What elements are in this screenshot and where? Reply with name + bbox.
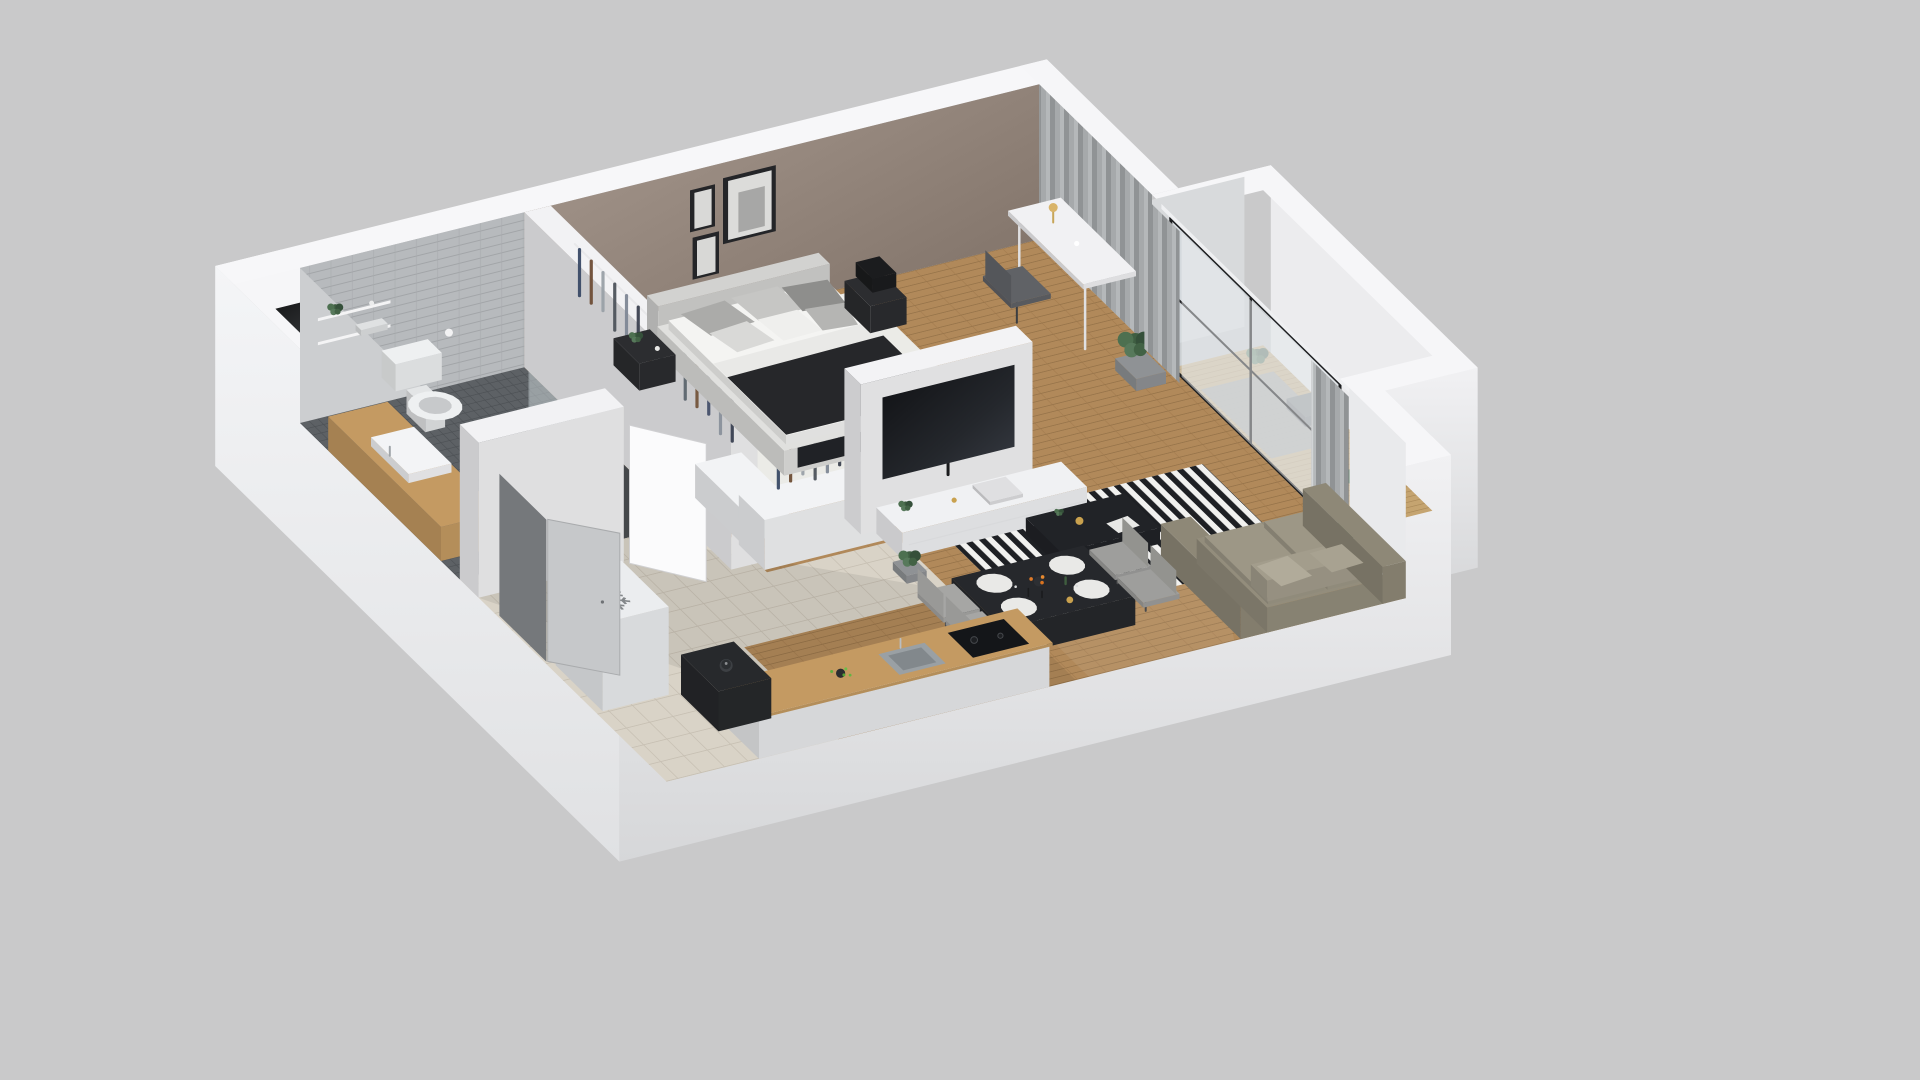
coffee-table-gold-tray [1075,517,1083,525]
floorplan-viewport: ❄ [0,0,1920,1080]
wall-art-small-bottom [697,236,716,276]
nightstand-vase [655,346,660,351]
apple-bowl [836,669,845,678]
bath-shelf-candle [369,301,374,306]
hob-ring-1 [971,637,978,644]
gold-tray [1066,597,1073,604]
entry-door-open [548,519,620,675]
hob-ring-2 [998,633,1003,638]
apple-3 [842,673,845,676]
apple-4 [849,674,852,677]
toilet-paper-roll [445,329,453,337]
tv-cabinet-gold-cup [952,498,957,503]
apple-2 [844,667,847,670]
wall-art-large-motif [738,186,764,233]
desk-lamp-shade [1049,203,1058,212]
bathroom-door-open [630,425,707,581]
wall-art-small-top [694,189,711,229]
apple-1 [830,670,833,673]
orange-1 [1029,577,1033,581]
entry-door-handle [601,600,604,603]
orange-3 [1040,581,1044,585]
stove-pot-knob [725,662,728,665]
desk-decor [1074,241,1079,246]
orange-2 [1041,575,1045,579]
drinking-glass-2 [1076,585,1079,588]
drinking-glass-1 [1014,585,1017,588]
floorplan-3d-render: ❄ [0,0,1920,1080]
